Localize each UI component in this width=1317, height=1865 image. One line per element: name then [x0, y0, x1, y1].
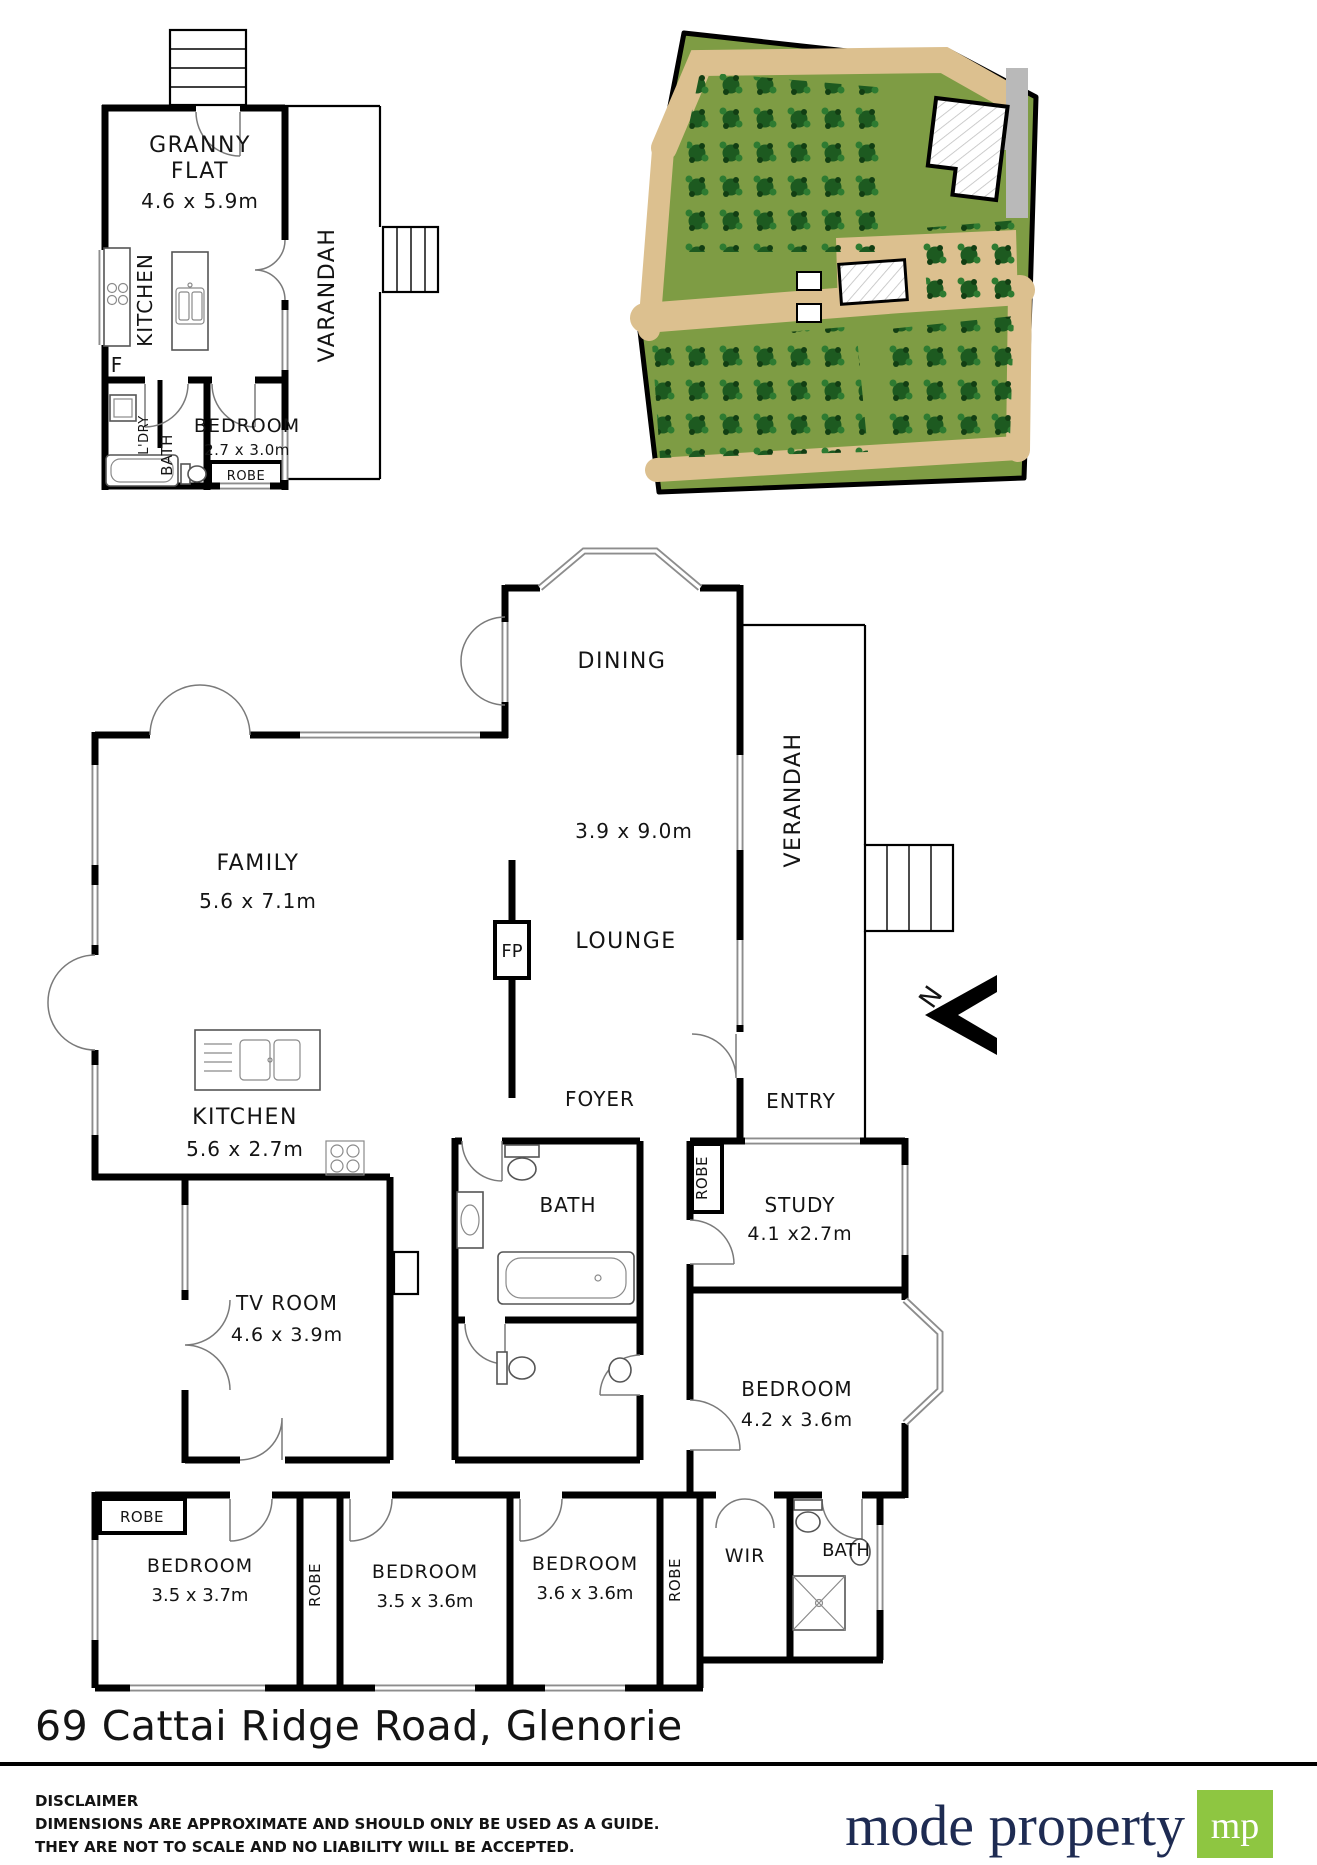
floorplan-canvas: GRANNY FLAT 4.6 x 5.9m KITCHEN F L'DRY B… — [0, 0, 1317, 1865]
hall-cupboard — [394, 1252, 418, 1294]
granny-verandah-label: VARANDAH — [315, 228, 340, 363]
main-steps — [865, 845, 953, 931]
tv-room-dims: 4.6 x 3.9m — [231, 1324, 343, 1346]
granny-title-line1: GRANNY — [149, 133, 251, 158]
cooktop-icon — [326, 1141, 364, 1175]
entry-label: ENTRY — [766, 1089, 836, 1113]
floorplan-page: GRANNY FLAT 4.6 x 5.9m KITCHEN F L'DRY B… — [0, 0, 1317, 1865]
verandah-label: VERANDAH — [781, 733, 806, 868]
granny-steps-right — [383, 227, 438, 292]
granny-bedroom-dims: 2.7 x 3.0m — [204, 441, 290, 459]
granny-steps-top — [170, 30, 246, 105]
fireplace-label: FP — [501, 941, 522, 962]
footer-divider — [0, 1762, 1317, 1766]
site-plan — [640, 33, 1036, 492]
kitchen-label: KITCHEN — [192, 1105, 298, 1130]
kitchen-island — [195, 1030, 320, 1090]
study-label: STUDY — [764, 1193, 835, 1217]
tv-room-label: TV ROOM — [235, 1291, 338, 1315]
address-title: 69 Cattai Ridge Road, Glenorie — [35, 1702, 683, 1750]
main-bath-label: BATH — [539, 1193, 596, 1217]
bedroom3-dims: 3.6 x 3.6m — [537, 1583, 634, 1604]
bedroom2-label: BEDROOM — [372, 1561, 478, 1583]
disclaimer-line2: THEY ARE NOT TO SCALE AND NO LIABILITY W… — [35, 1838, 575, 1856]
north-arrow: N — [914, 975, 997, 1055]
granny-fridge-label: F — [111, 353, 124, 377]
granny-title-line2: FLAT — [171, 159, 229, 184]
granny-bedroom-label: BEDROOM — [194, 415, 300, 437]
granny-flat: GRANNY FLAT 4.6 x 5.9m KITCHEN F L'DRY B… — [102, 30, 540, 570]
dining-lounge-dims: 3.9 x 9.0m — [575, 819, 693, 843]
robe-strip2-label: ROBE — [666, 1558, 684, 1602]
site-outbuilding-2 — [797, 304, 821, 322]
bedroom3-label: BEDROOM — [532, 1553, 638, 1575]
brand-name: mode property — [845, 1793, 1185, 1858]
granny-robe-label: ROBE — [227, 469, 265, 484]
lounge-label: LOUNGE — [575, 929, 676, 954]
wc-fixtures — [497, 1352, 631, 1384]
family-label: FAMILY — [217, 851, 300, 876]
ensuite-fixtures — [793, 1500, 870, 1630]
study-dims: 4.1 x2.7m — [747, 1223, 852, 1245]
bedroom2-dims: 3.5 x 3.6m — [377, 1591, 474, 1612]
kitchen-dims: 5.6 x 2.7m — [186, 1137, 304, 1161]
ensuite-bath-label: BATH — [822, 1540, 870, 1561]
main-house: DINING 3.9 x 9.0m LOUNGE FP FAMILY 5.6 x… — [48, 551, 953, 1688]
footer: 69 Cattai Ridge Road, Glenorie DISCLAIME… — [0, 1702, 1317, 1858]
bedroom-master-dims: 4.2 x 3.6m — [741, 1409, 853, 1431]
disclaimer-line1: DIMENSIONS ARE APPROXIMATE AND SHOULD ON… — [35, 1815, 659, 1833]
family-dims: 5.6 x 7.1m — [199, 889, 317, 913]
bedroom1-dims: 3.5 x 3.7m — [152, 1585, 249, 1606]
entry-robe-label: ROBE — [693, 1156, 711, 1200]
granny-laundry-tub-icon — [110, 395, 136, 421]
brand-mark-text: mp — [1211, 1805, 1260, 1847]
granny-kitchen-label: KITCHEN — [133, 253, 157, 347]
bedroom1-robe-label: ROBE — [120, 1508, 164, 1526]
site-shed — [839, 260, 908, 305]
main-bath-fixtures — [457, 1145, 634, 1304]
granny-laundry-label: L'DRY — [137, 415, 152, 454]
site-outbuilding-1 — [797, 272, 821, 290]
bedroom1-label: BEDROOM — [147, 1555, 253, 1577]
granny-dims: 4.6 x 5.9m — [141, 189, 259, 213]
wir-label: WIR — [725, 1545, 766, 1567]
dining-label: DINING — [578, 649, 667, 674]
robe-strip1-label: ROBE — [306, 1563, 324, 1607]
brand-logo: mode property mp — [845, 1790, 1273, 1858]
granny-bath-label: BATH — [158, 434, 176, 476]
bedroom-master-label: BEDROOM — [741, 1377, 852, 1401]
foyer-label: FOYER — [565, 1087, 635, 1111]
disclaimer-title: DISCLAIMER — [35, 1792, 139, 1810]
granny-toilet-icon — [181, 464, 206, 484]
